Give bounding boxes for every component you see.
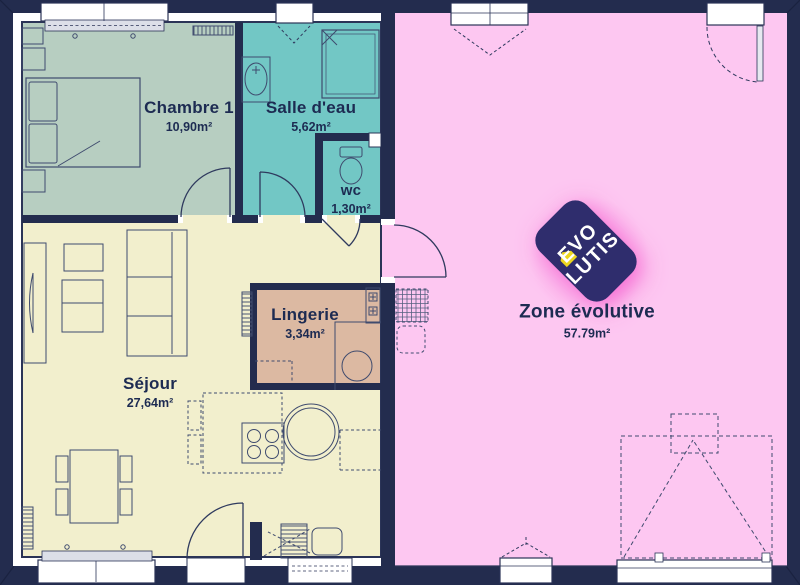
room-label-lingerie: Lingerie 3,34m²	[271, 304, 339, 342]
wall-wc-left	[315, 141, 323, 215]
floor-plan: Chambre 1 10,90m² Salle d'eau 5,62m² wc …	[0, 0, 800, 585]
room-label-wc: wc 1,30m²	[331, 181, 371, 217]
wall-entry-stub	[250, 522, 262, 560]
radiator	[242, 292, 252, 336]
room-label-zone-evolutive: Zone évolutive 57.79m²	[519, 301, 655, 342]
floor-plan-drawing	[0, 0, 800, 585]
room-label-salle-deau: Salle d'eau 5,62m²	[266, 97, 356, 135]
wall-main-lower	[381, 277, 395, 566]
wall-lingerie-top	[250, 283, 381, 290]
room-label-chambre-1: Chambre 1 10,90m²	[144, 97, 234, 135]
wall-main-upper	[381, 13, 395, 225]
vent-grille	[193, 26, 233, 35]
wall-lingerie-bottom	[250, 383, 381, 390]
radiator	[22, 507, 33, 549]
back-door-porch	[288, 558, 352, 583]
future-kitchenette-drainer	[396, 289, 428, 322]
door-leaf	[757, 26, 763, 81]
room-label-sejour: Séjour 27,64m²	[123, 373, 177, 411]
duct-niche	[369, 133, 381, 147]
entry-threshold	[187, 558, 245, 583]
wall-chambre-sdb	[235, 22, 243, 215]
